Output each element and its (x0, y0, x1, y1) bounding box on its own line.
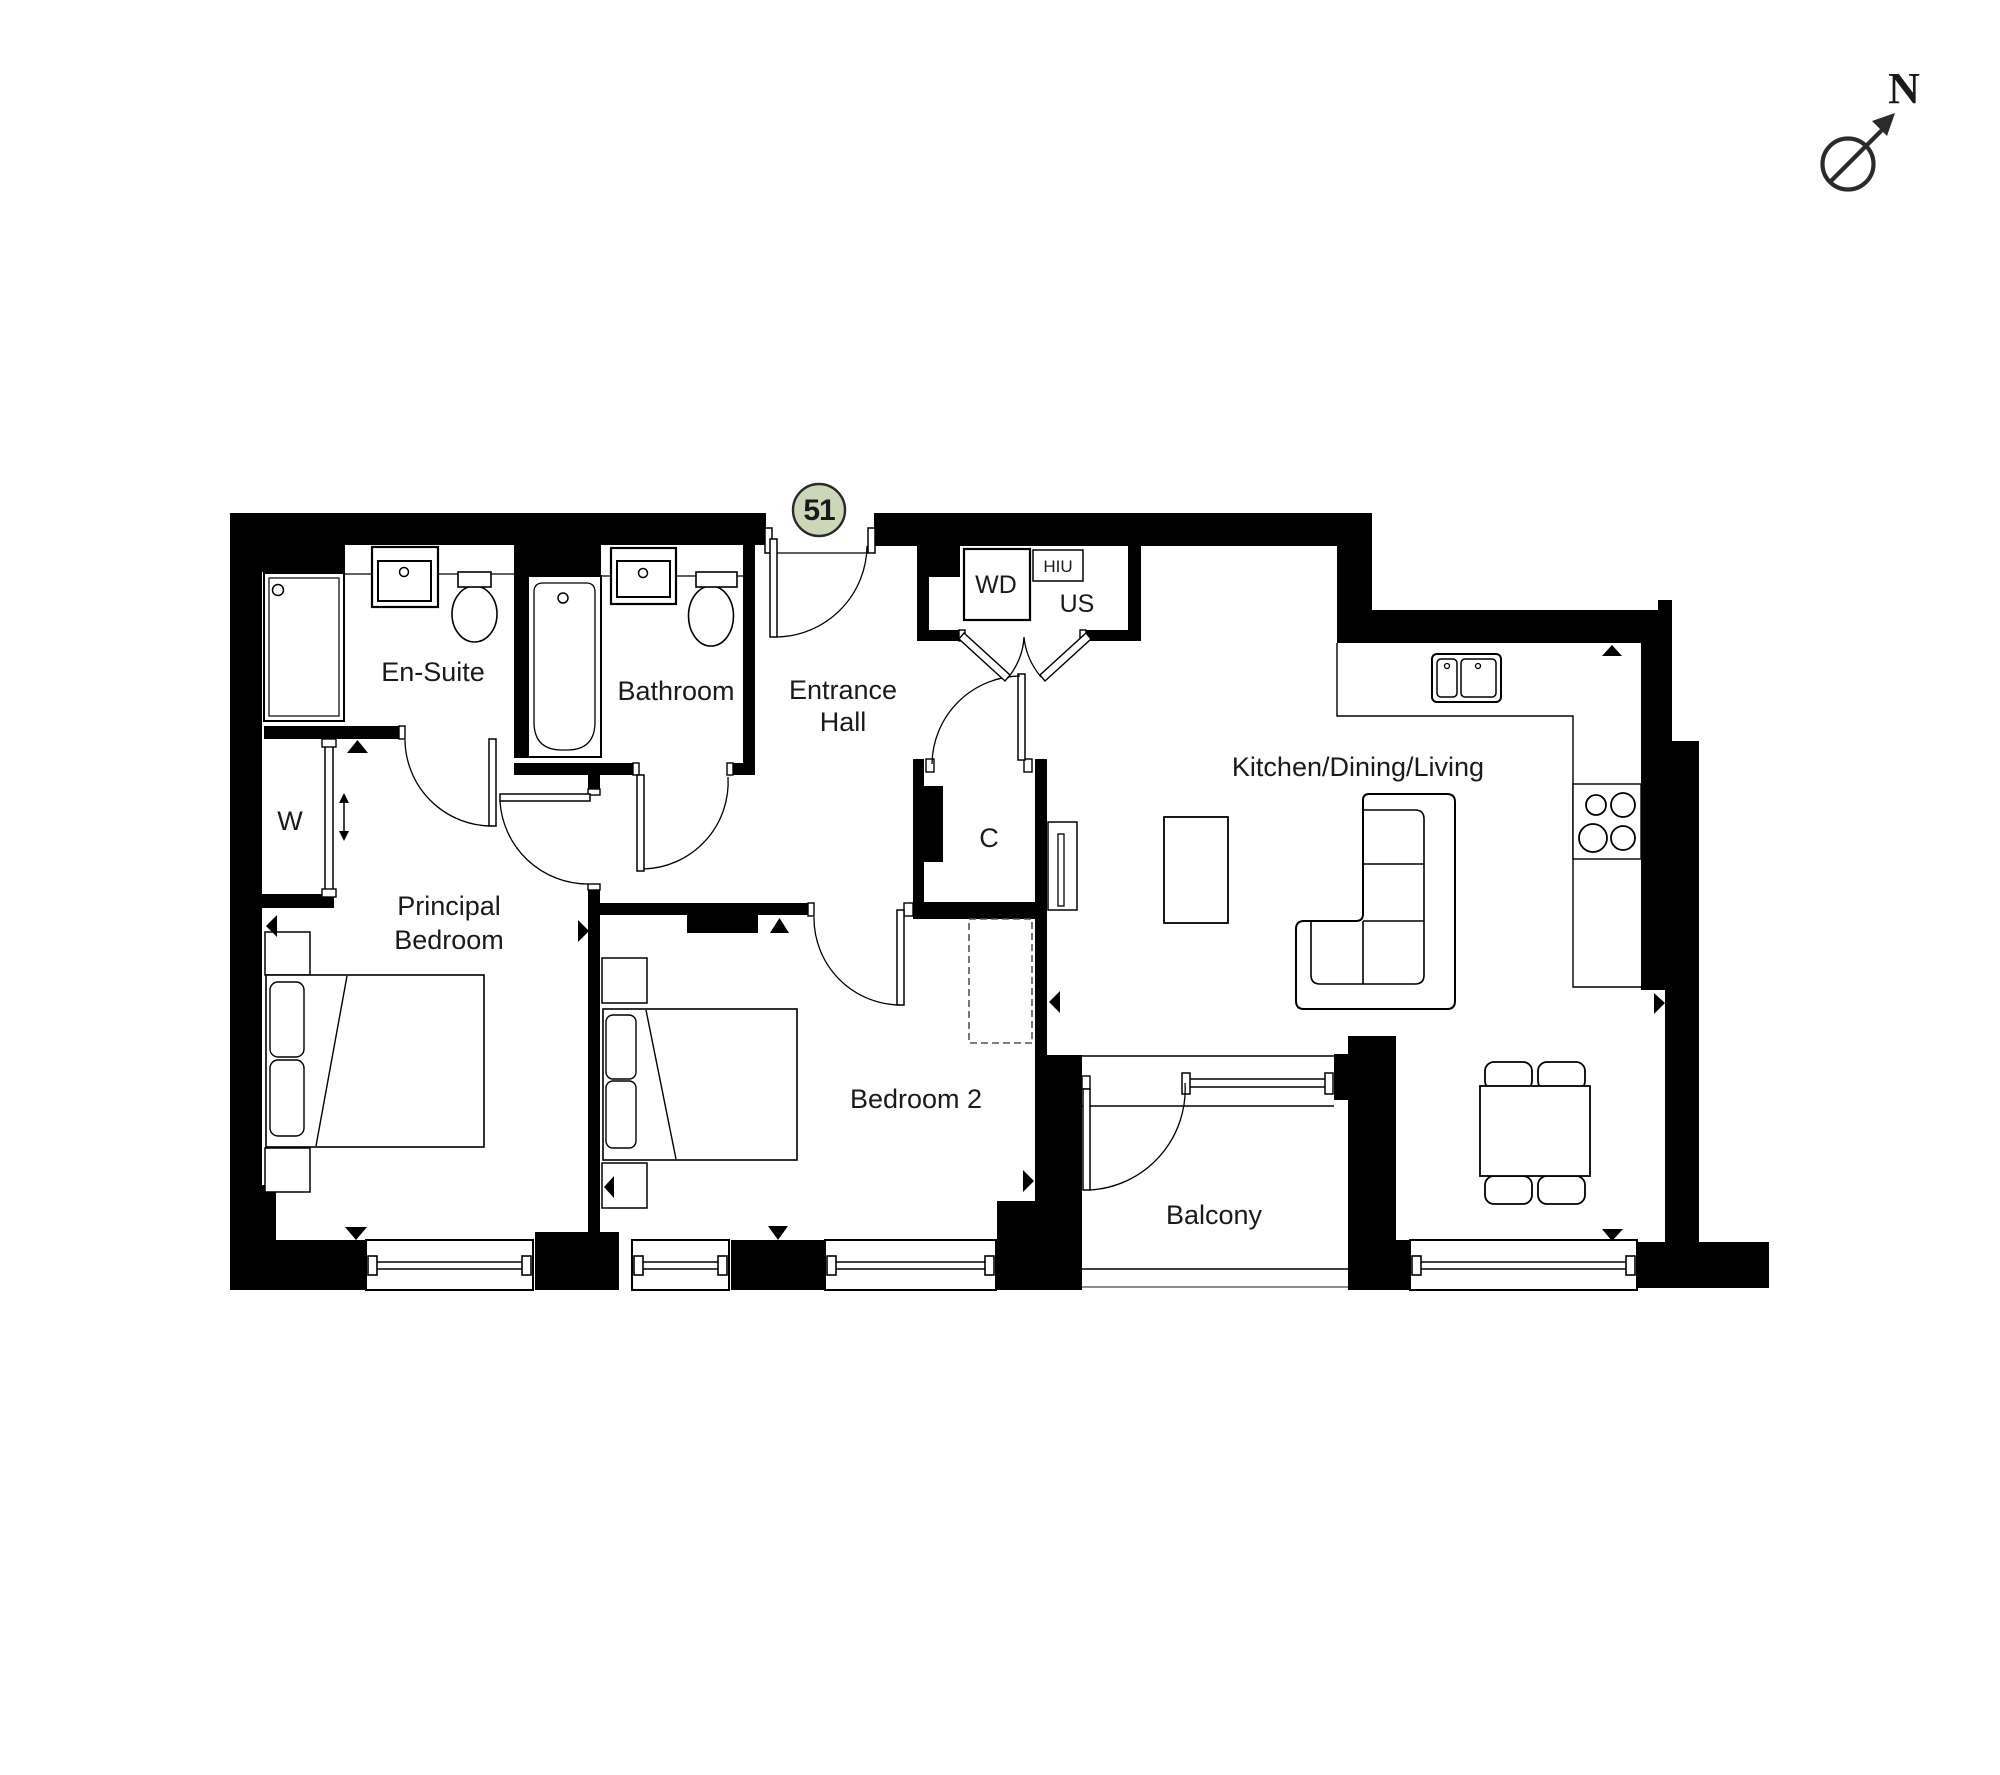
svg-text:Principal: Principal (397, 891, 501, 921)
svg-text:WD: WD (975, 571, 1017, 599)
svg-text:Balcony: Balcony (1166, 1200, 1263, 1230)
svg-text:Entrance: Entrance (789, 675, 897, 705)
svg-text:Bedroom: Bedroom (394, 925, 504, 955)
svg-text:HIU: HIU (1043, 557, 1072, 576)
svg-text:51: 51 (803, 494, 835, 527)
svg-text:Bathroom: Bathroom (617, 676, 734, 706)
svg-text:Kitchen/Dining/Living: Kitchen/Dining/Living (1232, 752, 1484, 782)
svg-text:Bedroom 2: Bedroom 2 (850, 1084, 982, 1114)
svg-text:C: C (979, 823, 999, 853)
svg-text:W: W (277, 806, 303, 836)
svg-text:US: US (1060, 590, 1095, 618)
svg-text:En-Suite: En-Suite (381, 657, 485, 687)
svg-text:N: N (1888, 64, 1920, 113)
svg-text:Hall: Hall (820, 707, 867, 737)
